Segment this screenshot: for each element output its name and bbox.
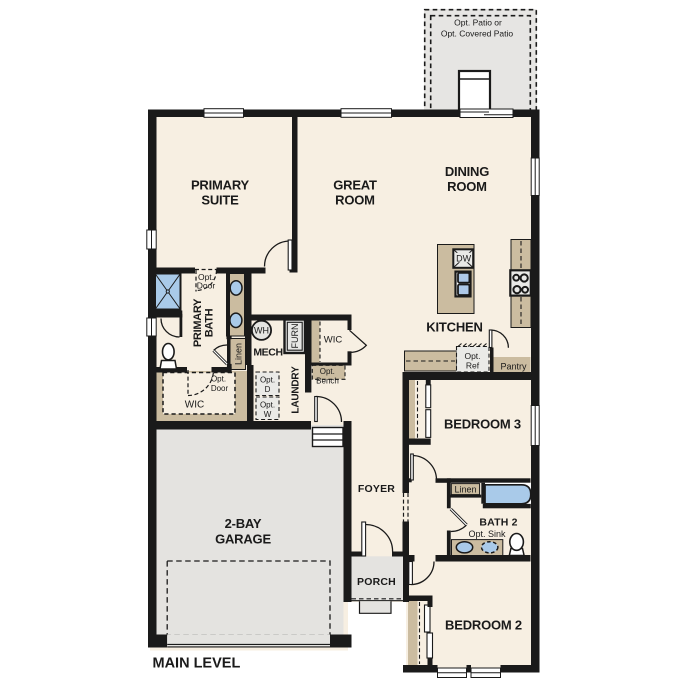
svg-text:MECH: MECH [253,347,282,359]
svg-text:BEDROOM 3: BEDROOM 3 [444,417,521,432]
svg-text:Opt. Patio or: Opt. Patio or [454,18,502,28]
svg-text:Linen: Linen [234,343,244,365]
svg-text:ROOM: ROOM [447,179,487,194]
svg-text:PRIMARY: PRIMARY [191,178,250,193]
svg-text:LAUNDRY: LAUNDRY [291,366,302,414]
svg-text:KITCHEN: KITCHEN [426,320,482,335]
svg-text:W: W [264,410,272,419]
svg-text:WIC: WIC [324,335,343,346]
svg-text:PORCH: PORCH [357,576,396,588]
svg-text:Pantry: Pantry [500,362,527,372]
svg-text:FURN: FURN [290,324,300,349]
svg-text:Door: Door [197,280,216,290]
svg-text:DW: DW [456,253,471,263]
svg-text:WIC: WIC [185,400,204,411]
svg-text:BATH: BATH [204,308,216,337]
svg-text:Opt.: Opt. [464,351,480,361]
svg-text:ROOM: ROOM [335,193,375,208]
svg-text:PRIMARY: PRIMARY [192,298,204,347]
svg-text:BEDROOM 2: BEDROOM 2 [445,617,522,632]
svg-text:Linen: Linen [454,484,476,494]
svg-text:Opt.: Opt. [320,367,335,376]
svg-text:Bench: Bench [316,376,339,385]
svg-text:Ref: Ref [466,361,480,371]
svg-text:Opt.: Opt. [211,375,226,384]
svg-text:FOYER: FOYER [358,483,395,495]
svg-text:GARAGE: GARAGE [215,532,271,547]
svg-text:SUITE: SUITE [201,193,239,208]
svg-text:GREAT: GREAT [333,178,377,193]
svg-text:MAIN LEVEL: MAIN LEVEL [153,656,241,672]
svg-text:Opt.: Opt. [260,401,275,410]
svg-text:BATH 2: BATH 2 [479,517,517,529]
svg-text:DINING: DINING [445,164,489,179]
svg-text:Door: Door [211,384,229,393]
svg-text:Opt.: Opt. [260,376,275,385]
svg-text:Opt. Sink: Opt. Sink [468,529,506,539]
svg-text:2-BAY: 2-BAY [225,516,262,531]
svg-text:Opt. Covered Patio: Opt. Covered Patio [441,29,514,39]
svg-text:WH: WH [254,326,269,336]
svg-text:D: D [265,385,271,394]
